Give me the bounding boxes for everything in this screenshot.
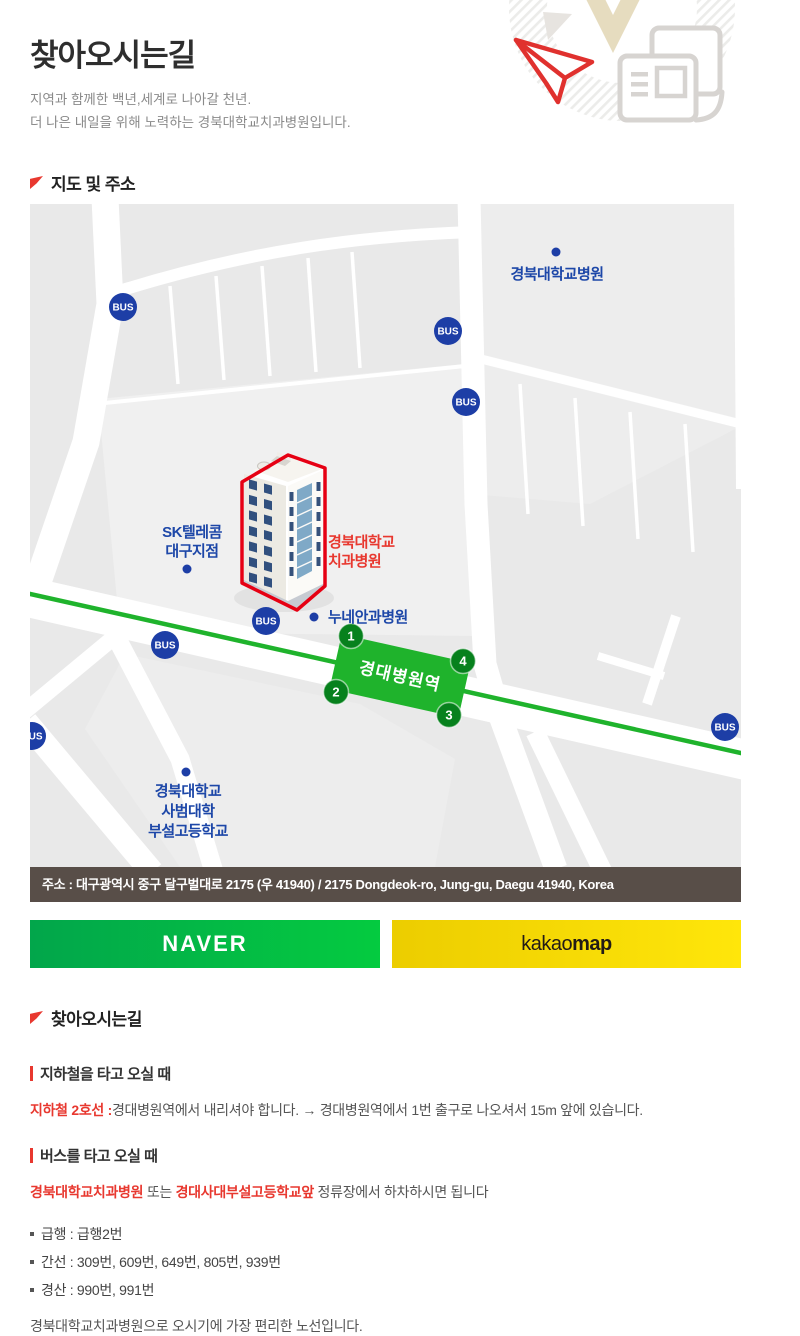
- page-title: 찾아오시는길: [30, 30, 195, 75]
- dental-hospital-label-line2: 치과병원: [328, 553, 381, 570]
- bus-stop-marker: BUS: [109, 293, 137, 321]
- bus-route-express: 급행 : 급행2번: [41, 1224, 122, 1244]
- red-flag-icon: [30, 1011, 43, 1024]
- page-subtitle: 지역과 함께한 백년,세계로 나아갈 천년. 더 나은 내일을 위해 노력하는 …: [30, 88, 351, 134]
- bus-stop-1-highlight: 경북대학교치과병원: [30, 1184, 143, 1200]
- subway-subheading: 지하철을 타고 오실 때: [30, 1063, 771, 1084]
- square-bullet-icon: [30, 1232, 34, 1236]
- naver-map-button[interactable]: NAVER: [30, 920, 380, 968]
- bus-stop-marker: BUS: [151, 631, 179, 659]
- svg-text:BUS: BUS: [437, 327, 458, 338]
- bus-stop-marker: BUS: [452, 388, 480, 416]
- red-flag-icon: [30, 176, 43, 189]
- map-section-title: 지도 및 주소: [51, 170, 135, 195]
- exit-3-number: 3: [445, 708, 452, 723]
- exit-2-number: 2: [332, 685, 339, 700]
- dental-hospital-building: [234, 452, 334, 612]
- exit-3-marker: 3: [437, 703, 462, 728]
- nune-eye-hospital-label: 누네안과병원: [328, 608, 408, 626]
- bus-stop-marker: BUS: [711, 713, 739, 741]
- location-map: 경대병원역 1 2 3: [30, 204, 741, 902]
- school-label-line2: 사범대학: [161, 803, 215, 820]
- bus-text-middle: 또는: [143, 1184, 175, 1200]
- svg-text:BUS: BUS: [154, 641, 175, 652]
- red-bar-icon: [30, 1148, 33, 1163]
- bus-stop-marker: BUS: [252, 607, 280, 635]
- square-bullet-icon: [30, 1288, 34, 1292]
- nune-eye-hospital-dot: [310, 613, 319, 622]
- bus-route-gyeongsan: 경산 : 990번, 991번: [41, 1280, 154, 1300]
- subtitle-line-1: 지역과 함께한 백년,세계로 나아갈 천년.: [30, 92, 251, 107]
- subway-subheading-title: 지하철을 타고 오실 때: [40, 1063, 171, 1084]
- naver-button-label: NAVER: [162, 931, 247, 957]
- svg-text:BUS: BUS: [30, 732, 43, 743]
- bus-route-item: 급행 : 급행2번: [30, 1220, 771, 1248]
- exit-4-marker: 4: [451, 649, 476, 674]
- bus-route-trunk: 간선 : 309번, 609번, 649번, 805번, 939번: [41, 1252, 281, 1272]
- bus-stop-2-highlight: 경대사대부설고등학교앞: [176, 1184, 314, 1200]
- subtitle-line-2: 더 나은 내일을 위해 노력하는 경북대학교치과병원입니다.: [30, 115, 351, 130]
- svg-text:BUS: BUS: [112, 303, 133, 314]
- exit-1-marker: 1: [339, 624, 364, 649]
- exit-1-number: 1: [347, 629, 354, 644]
- svg-text:BUS: BUS: [455, 398, 476, 409]
- kakao-map-button[interactable]: kakaomap: [392, 920, 741, 968]
- bus-stop-marker: BUS: [434, 317, 462, 345]
- square-bullet-icon: [30, 1260, 34, 1264]
- subway-direction-text: 지하철 2호선 :경대병원역에서 내리셔야 합니다. → 경대병원역에서 1번 …: [30, 1100, 771, 1120]
- bus-text-tail: 정류장에서 하차하시면 됩니다: [314, 1184, 488, 1200]
- map-section-heading: 지도 및 주소: [30, 170, 771, 195]
- kakao-label-prefix: kakao: [521, 933, 572, 955]
- knu-hospital-dot: [552, 248, 561, 257]
- subway-direction-body: 경대병원역에서 내리셔야 합니다. → 경대병원역에서 1번 출구로 나오셔서 …: [112, 1102, 643, 1118]
- bus-route-item: 경산 : 990번, 991번: [30, 1276, 771, 1304]
- school-label-line1: 경북대학교: [155, 782, 222, 800]
- gray-triangle-icon: [543, 12, 572, 40]
- address-bar: 주소 : 대구광역시 중구 달구벌대로 2175 (우 41940) / 217…: [30, 867, 741, 902]
- knu-hospital-label: 경북대학교병원: [510, 265, 603, 283]
- map-canvas: 경대병원역 1 2 3: [30, 204, 741, 867]
- bus-route-list: 급행 : 급행2번 간선 : 309번, 609번, 649번, 805번, 9…: [30, 1220, 771, 1304]
- sk-telecom-dot: [183, 565, 192, 574]
- beige-chevron-icon: [592, 0, 634, 34]
- sk-telecom-label-line1: SK텔레콤: [162, 523, 222, 541]
- paper-plane-news-decoration: [480, 0, 740, 140]
- exit-2-marker: 2: [324, 680, 349, 705]
- school-label-line3: 부설고등학교: [148, 823, 229, 840]
- exit-4-number: 4: [459, 654, 467, 669]
- bus-note: 경북대학교치과병원으로 오시기에 가장 편리한 노선입니다.: [30, 1316, 771, 1336]
- page-header: 찾아오시는길 지역과 함께한 백년,세계로 나아갈 천년. 더 나은 내일을 위…: [0, 0, 800, 170]
- subway-line-highlight: 지하철 2호선 :: [30, 1102, 112, 1118]
- decoration-illustration: [480, 0, 740, 140]
- directions-section: 찾아오시는길 지하철을 타고 오실 때 지하철 2호선 :경대병원역에서 내리셔…: [30, 1005, 771, 1336]
- kakao-label-suffix: map: [572, 933, 612, 955]
- page: 찾아오시는길 지역과 함께한 백년,세계로 나아갈 천년. 더 나은 내일을 위…: [0, 0, 800, 1336]
- bus-subheading: 버스를 타고 오실 때: [30, 1145, 771, 1166]
- sk-telecom-label-line2: 대구지점: [165, 542, 218, 560]
- school-dot: [182, 768, 191, 777]
- svg-text:BUS: BUS: [255, 617, 276, 628]
- bus-route-item: 간선 : 309번, 609번, 649번, 805번, 939번: [30, 1248, 771, 1276]
- bus-subheading-title: 버스를 타고 오실 때: [40, 1145, 157, 1166]
- dental-hospital-label-line1: 경북대학교: [328, 533, 395, 551]
- svg-text:BUS: BUS: [714, 723, 735, 734]
- directions-section-heading: 찾아오시는길: [30, 1005, 771, 1030]
- map-link-buttons: NAVER kakaomap: [30, 920, 741, 968]
- red-bar-icon: [30, 1066, 33, 1081]
- newspaper-icon: [620, 28, 722, 120]
- directions-section-title: 찾아오시는길: [51, 1005, 142, 1030]
- bus-direction-text: 경북대학교치과병원 또는 경대사대부설고등학교앞 정류장에서 하차하시면 됩니다: [30, 1182, 771, 1202]
- kakao-button-label: kakaomap: [521, 933, 612, 956]
